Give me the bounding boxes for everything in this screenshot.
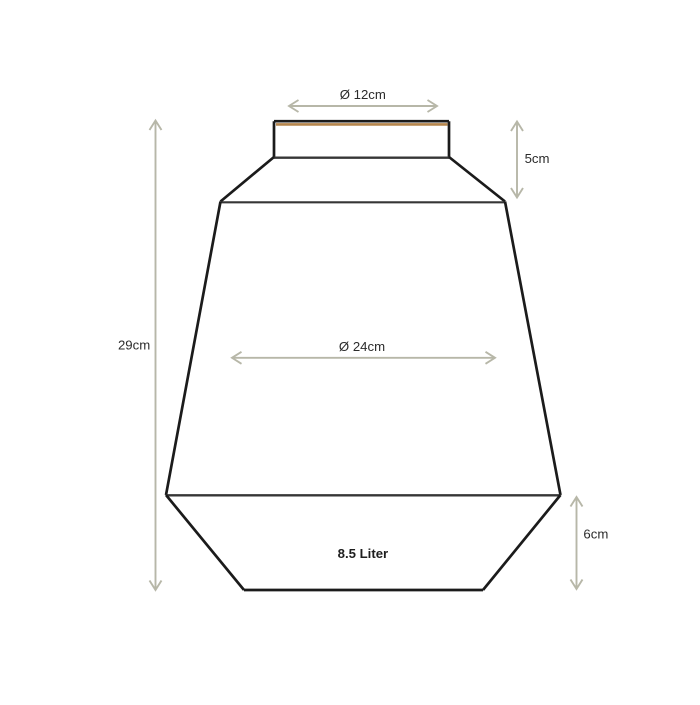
svg-text:8.5 Liter: 8.5 Liter xyxy=(338,546,389,561)
svg-text:6cm: 6cm xyxy=(583,527,608,542)
svg-text:29cm: 29cm xyxy=(118,338,150,353)
svg-text:Ø 12cm: Ø 12cm xyxy=(340,87,386,102)
svg-text:5cm: 5cm xyxy=(525,151,550,166)
svg-text:Ø 24cm: Ø 24cm xyxy=(339,339,385,354)
